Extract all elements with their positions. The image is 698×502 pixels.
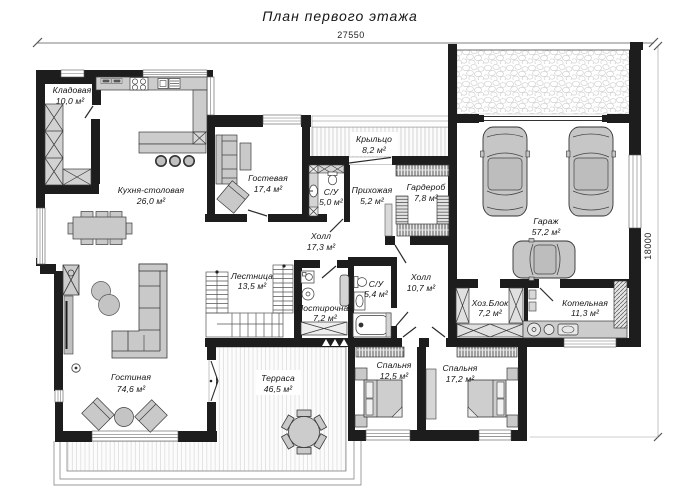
svg-text:57,2 м²: 57,2 м² xyxy=(532,227,562,237)
svg-text:74,6 м²: 74,6 м² xyxy=(117,384,147,394)
svg-text:Кухня-столовая: Кухня-столовая xyxy=(118,185,185,195)
svg-text:17,3 м²: 17,3 м² xyxy=(307,242,337,252)
svg-text:Гардероб: Гардероб xyxy=(407,182,447,192)
svg-text:18000: 18000 xyxy=(643,232,653,260)
svg-text:7,8 м²: 7,8 м² xyxy=(414,193,439,203)
svg-text:27550: 27550 xyxy=(337,30,365,40)
svg-text:7,2 м²: 7,2 м² xyxy=(313,313,338,323)
svg-text:Гараж: Гараж xyxy=(533,216,559,226)
svg-text:Спальня: Спальня xyxy=(442,363,477,373)
svg-text:13,5 м²: 13,5 м² xyxy=(238,281,268,291)
svg-text:46,5 м²: 46,5 м² xyxy=(264,384,294,394)
svg-text:Лестница: Лестница xyxy=(230,271,273,281)
svg-text:Кладовая: Кладовая xyxy=(53,85,92,95)
svg-text:Гостиная: Гостиная xyxy=(111,372,151,382)
svg-text:17,4 м²: 17,4 м² xyxy=(254,184,284,194)
svg-text:10,7 м²: 10,7 м² xyxy=(407,283,437,293)
svg-text:С/У: С/У xyxy=(324,187,340,197)
svg-text:8,2 м²: 8,2 м² xyxy=(362,145,387,155)
svg-text:Хоз.Блок: Хоз.Блок xyxy=(471,298,510,308)
svg-text:Спальня: Спальня xyxy=(376,360,411,370)
svg-text:7,2 м²: 7,2 м² xyxy=(478,308,503,318)
svg-text:Крыльцо: Крыльцо xyxy=(356,134,392,144)
svg-text:Холл: Холл xyxy=(410,272,431,282)
svg-text:Гостевая: Гостевая xyxy=(248,173,288,183)
svg-text:12,5 м²: 12,5 м² xyxy=(380,371,410,381)
svg-text:С/У: С/У xyxy=(369,279,385,289)
svg-text:5,0 м²: 5,0 м² xyxy=(319,197,344,207)
svg-text:Котельная: Котельная xyxy=(562,298,608,308)
svg-text:5,4 м²: 5,4 м² xyxy=(364,289,389,299)
svg-text:Постирочная: Постирочная xyxy=(297,303,353,313)
svg-text:5,2 м²: 5,2 м² xyxy=(360,196,385,206)
svg-text:26,0 м²: 26,0 м² xyxy=(136,196,167,206)
svg-text:Холл: Холл xyxy=(310,231,331,241)
svg-text:10,0 м²: 10,0 м² xyxy=(56,96,86,106)
svg-text:11,3 м²: 11,3 м² xyxy=(571,308,600,318)
svg-text:Прихожая: Прихожая xyxy=(352,185,393,195)
svg-text:План первого этажа: План первого этажа xyxy=(262,8,418,24)
svg-text:17,2 м²: 17,2 м² xyxy=(446,374,476,384)
svg-text:Терраса: Терраса xyxy=(261,373,295,383)
